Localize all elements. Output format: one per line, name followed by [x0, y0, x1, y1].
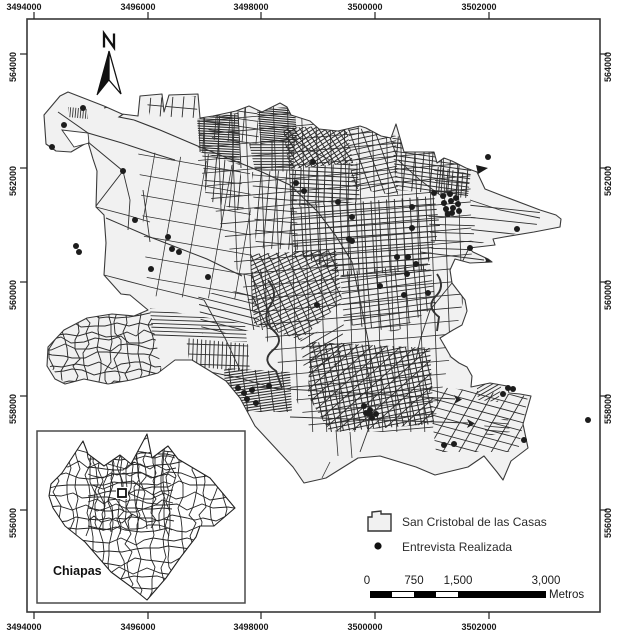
- svg-text:558000: 558000: [603, 394, 613, 424]
- svg-text:3498000: 3498000: [233, 2, 268, 12]
- svg-text:3494000: 3494000: [6, 2, 41, 12]
- svg-text:556000: 556000: [603, 508, 613, 538]
- svg-text:564000: 564000: [603, 52, 613, 82]
- svg-text:1,500: 1,500: [444, 575, 473, 587]
- svg-text:560000: 560000: [603, 280, 613, 310]
- svg-text:3498000: 3498000: [233, 622, 268, 632]
- svg-text:3496000: 3496000: [120, 2, 155, 12]
- svg-text:564000: 564000: [8, 52, 18, 82]
- svg-text:3502000: 3502000: [461, 622, 496, 632]
- svg-text:Metros: Metros: [549, 589, 584, 601]
- svg-text:3494000: 3494000: [6, 622, 41, 632]
- svg-text:562000: 562000: [603, 166, 613, 196]
- svg-text:560000: 560000: [8, 280, 18, 310]
- svg-text:3500000: 3500000: [347, 2, 382, 12]
- svg-text:556000: 556000: [8, 508, 18, 538]
- svg-text:Entrevista Realizada: Entrevista Realizada: [402, 540, 512, 554]
- svg-text:3496000: 3496000: [120, 622, 155, 632]
- svg-text:3,000: 3,000: [532, 575, 561, 587]
- svg-text:Chiapas: Chiapas: [53, 564, 102, 578]
- svg-text:558000: 558000: [8, 394, 18, 424]
- svg-text:562000: 562000: [8, 166, 18, 196]
- svg-text:750: 750: [404, 575, 423, 587]
- svg-text:San Cristobal de las Casas: San Cristobal de las Casas: [402, 515, 547, 529]
- svg-text:3500000: 3500000: [347, 622, 382, 632]
- svg-text:3502000: 3502000: [461, 2, 496, 12]
- svg-text:0: 0: [364, 575, 370, 587]
